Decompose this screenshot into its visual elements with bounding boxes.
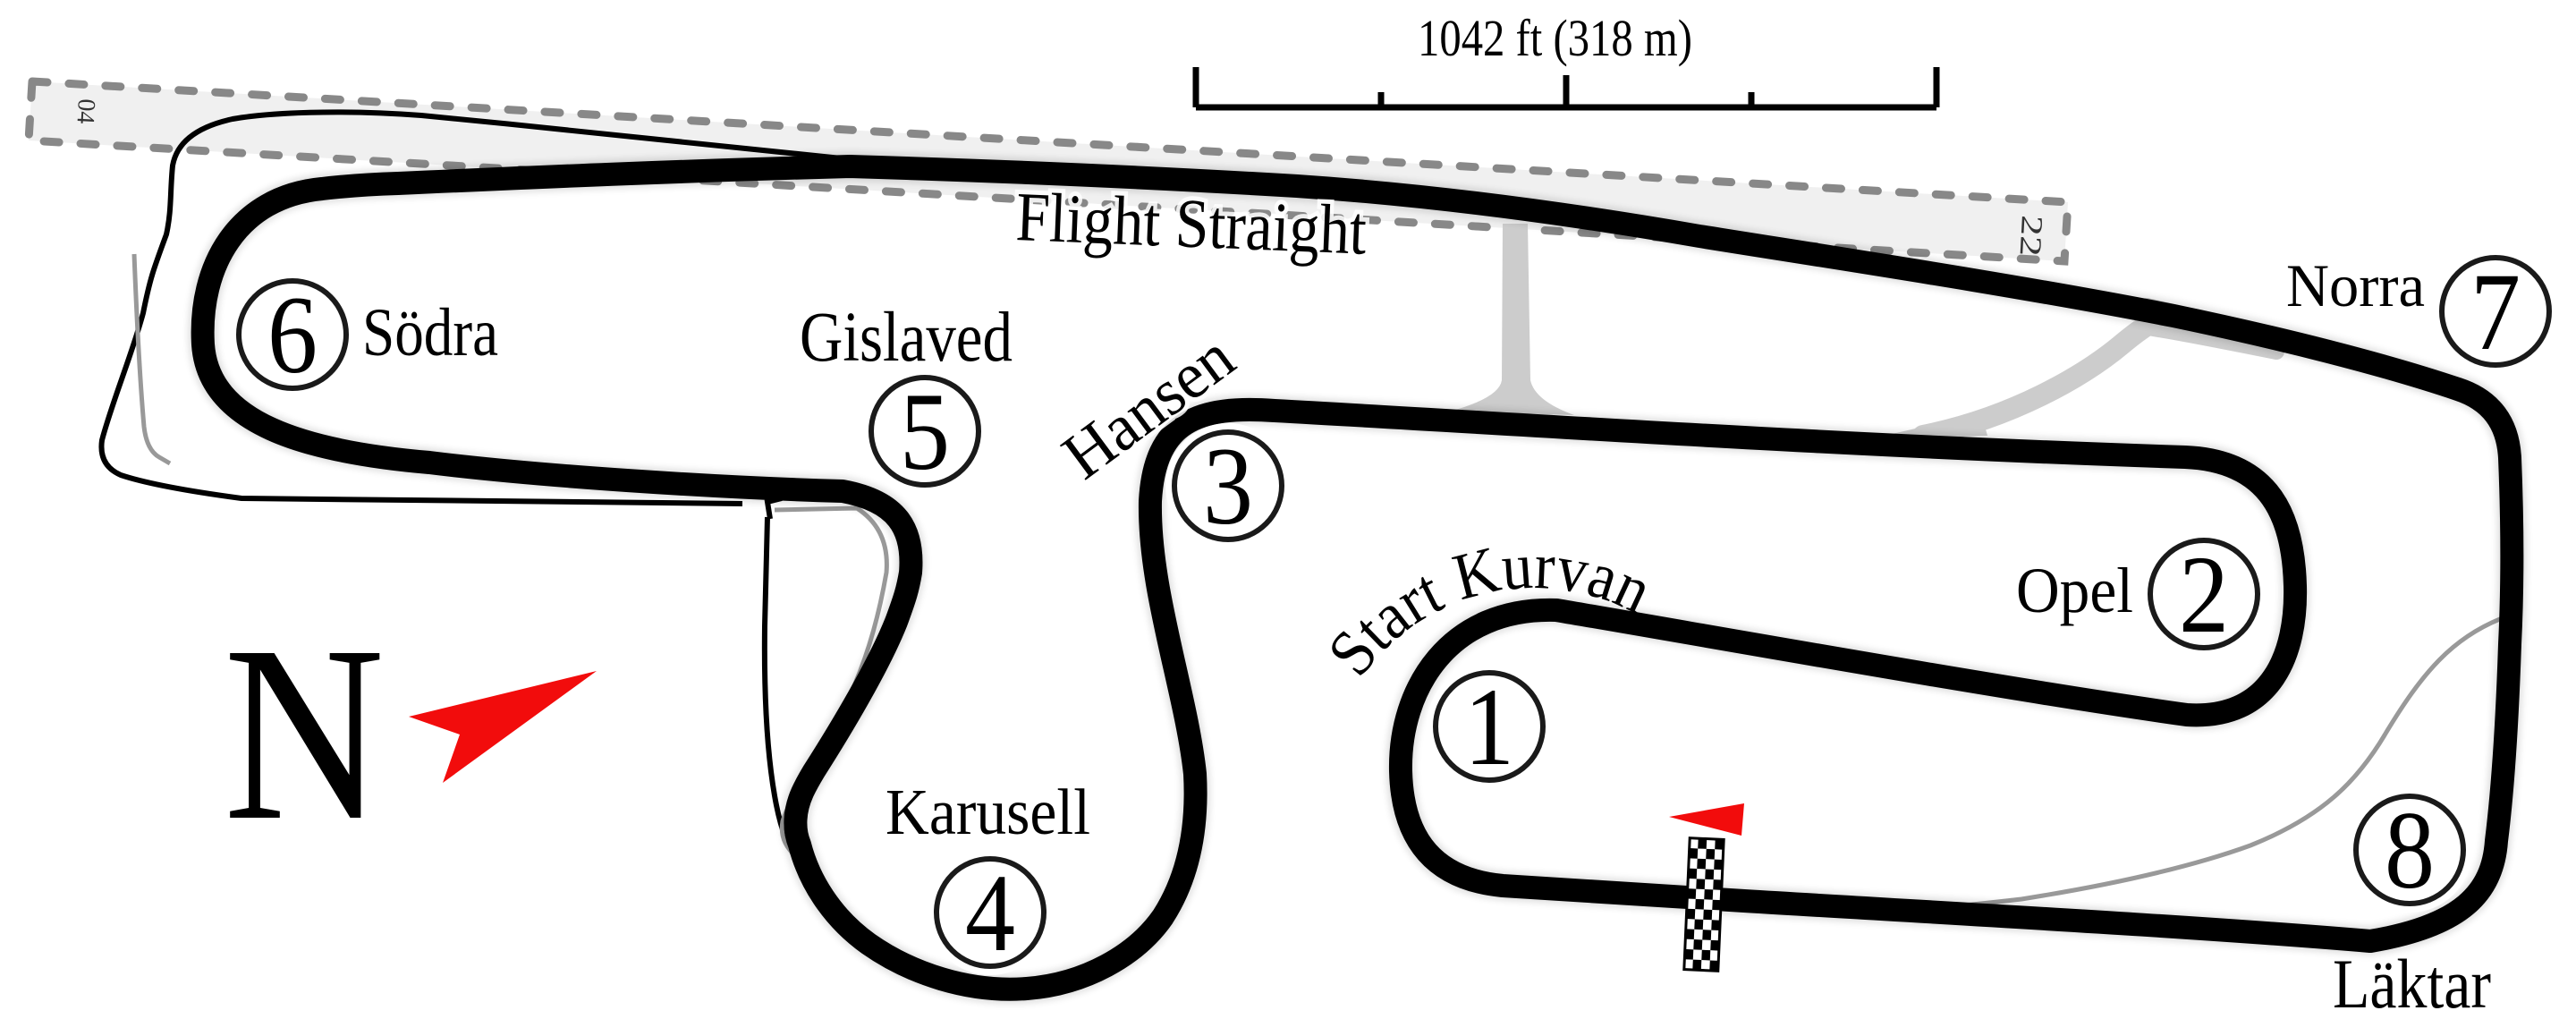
svg-text:Gislaved: Gislaved xyxy=(800,299,1013,377)
svg-text:Läktar: Läktar xyxy=(2333,945,2491,1023)
svg-text:Karusell: Karusell xyxy=(885,776,1090,848)
svg-text:N: N xyxy=(224,594,385,872)
svg-text:22: 22 xyxy=(2013,215,2048,258)
svg-text:1: 1 xyxy=(1464,666,1514,788)
svg-text:8: 8 xyxy=(2385,789,2435,912)
svg-text:Flight Straight: Flight Straight xyxy=(1014,177,1368,269)
svg-text:5: 5 xyxy=(900,370,950,493)
svg-text:2: 2 xyxy=(2179,533,2229,656)
svg-text:4: 4 xyxy=(965,852,1015,974)
svg-text:Södra: Södra xyxy=(362,295,498,370)
svg-text:Norra: Norra xyxy=(2286,251,2425,319)
svg-text:Opel: Opel xyxy=(2016,555,2133,626)
svg-text:04: 04 xyxy=(72,98,100,125)
svg-text:7: 7 xyxy=(2470,251,2521,373)
svg-text:3: 3 xyxy=(1203,425,1253,548)
svg-text:6: 6 xyxy=(267,274,318,396)
svg-text:1042 ft (318 m): 1042 ft (318 m) xyxy=(1418,9,1692,67)
